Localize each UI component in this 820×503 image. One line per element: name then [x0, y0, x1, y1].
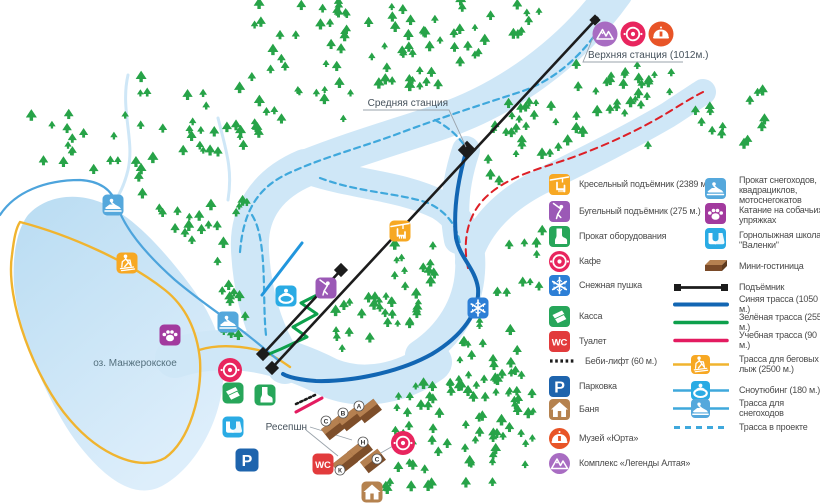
tree-icon: [643, 92, 651, 100]
tree-icon: [382, 62, 391, 72]
tree-icon: [429, 241, 437, 249]
tree-icon: [340, 115, 347, 122]
tree-icon: [535, 7, 542, 15]
tree-icon: [313, 89, 320, 97]
tree-icon: [455, 0, 466, 6]
tree-icon: [277, 54, 286, 63]
tbar-marker: [316, 278, 337, 299]
tree-icon: [527, 278, 534, 286]
tree-icon: [62, 123, 72, 133]
tree-icon: [209, 126, 219, 137]
tree-icon: [170, 223, 179, 233]
tree-icon: [248, 72, 257, 81]
tree-icon: [467, 350, 476, 360]
snowmobile-marker: [218, 312, 239, 333]
tree-icon: [605, 104, 614, 114]
tree-icon: [137, 89, 144, 96]
tree-icon: [411, 288, 422, 299]
tree-icon: [147, 151, 158, 163]
tree-icon: [213, 220, 222, 230]
tree-icon: [398, 4, 407, 14]
tree-icon: [387, 11, 397, 22]
tree-icon: [251, 20, 259, 28]
cabin-letter: С: [324, 419, 329, 426]
tree-icon: [505, 422, 515, 432]
tree-icon: [554, 142, 562, 151]
tree-icon: [489, 457, 496, 465]
tree-icon: [416, 66, 424, 74]
tree-icon: [533, 99, 540, 106]
tree-icon: [461, 477, 471, 488]
tree-icon: [518, 277, 527, 287]
tree-icon: [388, 309, 397, 318]
tree-icon: [496, 414, 507, 426]
tree-icon: [719, 122, 727, 131]
tree-icon: [434, 446, 443, 456]
tree-icon: [237, 133, 244, 140]
tree-icon: [592, 105, 603, 117]
tree-icon: [405, 14, 415, 25]
tree-icon: [205, 144, 216, 155]
ski-school-marker: [223, 417, 244, 438]
middle-station-label: Средняя станция: [368, 98, 448, 109]
tree-icon: [697, 117, 706, 126]
tree-icon: [517, 429, 525, 437]
tree-icon: [450, 42, 459, 52]
tree-icon: [254, 95, 265, 107]
tree-icon: [426, 259, 435, 268]
tree-icon: [401, 281, 409, 290]
tree-icon: [357, 308, 367, 318]
tree-icon: [515, 115, 523, 123]
tree-icon: [572, 111, 581, 120]
tree-icon: [523, 407, 534, 418]
tree-icon: [382, 292, 389, 300]
cafe-marker: [391, 431, 415, 455]
tree-icon: [537, 225, 547, 236]
tree-icon: [479, 339, 487, 348]
tree-icon: [114, 156, 122, 164]
reception-label: Ресепшн: [266, 422, 307, 433]
tree-icon: [234, 81, 245, 93]
tree-icon: [202, 101, 210, 109]
tree-icon: [254, 0, 265, 9]
tree-icon: [333, 332, 341, 341]
ticket-office-marker: [223, 383, 244, 404]
tree-icon: [621, 109, 629, 117]
tree-icon: [422, 77, 431, 86]
tree-icon: [173, 206, 182, 215]
tree-icon: [427, 435, 436, 445]
tree-icon: [194, 210, 204, 221]
tree-icon: [708, 126, 716, 135]
tree-icon: [347, 89, 354, 96]
tree-icon: [512, 0, 522, 10]
tree-icon: [239, 140, 249, 150]
tree-icon: [562, 134, 573, 145]
tree-icon: [58, 156, 68, 167]
tree-icon: [364, 17, 374, 27]
tree-icon: [520, 238, 528, 246]
tree-icon: [79, 128, 88, 138]
parking-marker: [236, 449, 259, 472]
tree-icon: [323, 60, 330, 67]
tree-icon: [390, 21, 401, 32]
tree-icon: [517, 135, 527, 146]
tree-icon: [522, 439, 529, 447]
cabin-letter: К: [338, 468, 342, 475]
cabin-letter: С: [375, 457, 380, 464]
tree-icon: [472, 24, 479, 31]
chairlift-line: [272, 17, 598, 368]
tree-icon: [186, 213, 193, 221]
tree-icon: [321, 86, 328, 93]
tree-icon: [158, 123, 167, 132]
tree-icon: [383, 317, 392, 327]
tree-icon: [391, 271, 399, 279]
tree-icon: [137, 188, 147, 199]
tree-icon: [436, 36, 443, 44]
dog-sled-marker: [160, 325, 181, 346]
banya-marker: [362, 482, 383, 503]
cabin-letter: А: [357, 404, 362, 411]
tree-icon: [505, 324, 516, 335]
tree-icon: [381, 42, 388, 49]
tree-icon: [455, 56, 465, 66]
tree-icon: [365, 332, 375, 343]
tree-icon: [529, 434, 536, 442]
cabin-letter: В: [341, 411, 346, 418]
tree-icon: [484, 154, 493, 164]
tree-icon: [462, 420, 470, 429]
tree-icon: [429, 423, 438, 433]
cafe-marker: [218, 358, 242, 382]
tree-icon: [552, 118, 559, 126]
upper-station-label: Верхняя станция (1012м.): [588, 50, 708, 61]
tree-icon: [521, 460, 529, 468]
tree-icon: [143, 88, 152, 97]
tree-icon: [64, 109, 74, 119]
tree-icon: [456, 356, 463, 363]
tree-icon: [488, 354, 498, 364]
tree-icon: [524, 16, 533, 25]
tree-icon: [137, 120, 145, 129]
tree-icon: [224, 279, 234, 290]
tree-icon: [394, 320, 401, 327]
tree-icon: [197, 126, 204, 134]
tree-icon: [64, 141, 71, 149]
cafe-marker: [621, 22, 646, 47]
tree-icon: [110, 132, 117, 140]
tree-icon: [39, 155, 49, 165]
tree-icon: [189, 117, 197, 125]
tree-icon: [505, 239, 514, 249]
tree-icon: [427, 67, 437, 77]
tree-icon: [204, 220, 212, 229]
tree-icon: [531, 237, 541, 248]
tree-icon: [512, 386, 521, 396]
chairlift-marker: [390, 221, 411, 242]
tree-icon: [266, 65, 274, 74]
tree-icon: [502, 287, 511, 296]
tree-icon: [416, 82, 424, 90]
tree-icon: [592, 87, 599, 95]
tree-icon: [182, 89, 192, 100]
tree-icon: [188, 235, 196, 244]
tree-icon: [527, 388, 536, 398]
tree-icon: [330, 304, 341, 316]
lake-label: оз. Манжерокское: [93, 358, 177, 369]
wc-marker: [313, 454, 334, 475]
tree-icon: [479, 34, 490, 45]
tree-icon: [745, 95, 754, 104]
snow-cannon-marker: [468, 298, 489, 319]
tree-icon: [492, 388, 499, 396]
tree-icon: [270, 106, 278, 114]
tree-icon: [443, 438, 452, 448]
tree-icon: [618, 78, 628, 89]
tree-icon: [296, 0, 306, 10]
tree-icon: [275, 30, 284, 40]
tree-icon: [403, 29, 414, 40]
stream-1: [105, 75, 130, 215]
tree-icon: [613, 98, 622, 107]
snowtubing-marker: [276, 286, 297, 307]
tree-icon: [461, 443, 469, 452]
tree-icon: [345, 327, 354, 337]
tree-icon: [481, 392, 490, 402]
snowmobile-marker: [103, 195, 124, 216]
tree-icon: [486, 10, 495, 20]
cabin-letter: Н: [361, 440, 366, 447]
tree-icon: [267, 44, 278, 56]
tree-icon: [637, 100, 645, 109]
tree-icon: [537, 147, 548, 159]
tree-icon: [332, 326, 340, 334]
tree-icon: [530, 110, 539, 120]
yurt-museum-marker: [649, 22, 674, 47]
tree-icon: [651, 71, 658, 78]
tree-icon: [666, 88, 673, 96]
tree-icon: [465, 371, 472, 379]
tree-icon: [178, 145, 188, 156]
tree-icon: [480, 374, 488, 383]
tree-icon: [218, 286, 226, 294]
tree-icon: [472, 436, 480, 444]
tree-icon: [277, 113, 287, 123]
tree-icon: [388, 3, 395, 10]
tree-icon: [546, 100, 556, 110]
tree-icon: [416, 399, 426, 410]
tree-icon: [463, 41, 473, 51]
tree-icon: [318, 4, 327, 13]
tree-icon: [106, 155, 115, 164]
tree-icon: [319, 93, 329, 104]
tree-icon: [667, 68, 675, 76]
tree-icon: [393, 256, 400, 263]
tree-icon: [512, 345, 521, 355]
tree-icon: [393, 461, 403, 472]
tree-icon: [431, 15, 439, 23]
training-trail: [296, 398, 322, 412]
tree-icon: [506, 357, 516, 368]
tree-icon: [475, 426, 485, 436]
tree-icon: [573, 81, 582, 91]
tree-icon: [425, 41, 435, 52]
tree-icon: [522, 122, 530, 131]
tree-icon: [433, 79, 443, 89]
tree-icon: [222, 121, 232, 132]
map-canvas: WC P: [0, 0, 820, 503]
tree-icon: [513, 150, 520, 157]
tree-icon: [368, 52, 375, 60]
tree-icon: [48, 121, 55, 129]
tree-icon: [218, 236, 229, 248]
tree-icon: [199, 89, 207, 97]
tree-icon: [332, 61, 342, 71]
tree-icon: [485, 169, 495, 180]
tree-icon: [338, 344, 345, 352]
tree-icon: [336, 43, 346, 53]
tree-icon: [205, 199, 216, 211]
tree-icon: [499, 432, 507, 440]
tree-icon: [339, 30, 349, 41]
tree-icon: [213, 257, 221, 266]
tree-icon: [187, 130, 197, 141]
tree-icon: [533, 250, 541, 258]
xc-skier-marker: [117, 253, 138, 274]
tree-icon: [197, 224, 207, 234]
equipment-rental-marker: [255, 385, 276, 406]
tree-icon: [68, 133, 77, 143]
tree-icon: [292, 30, 300, 39]
tree-icon: [535, 281, 544, 290]
cafe-leader: [379, 446, 393, 454]
tree-icon: [434, 407, 444, 418]
altai-legends-marker: [593, 22, 618, 47]
tree-icon: [523, 9, 530, 17]
tree-icon: [473, 381, 481, 389]
tree-icon: [262, 107, 270, 115]
tree-icon: [334, 77, 344, 88]
tree-icon: [26, 109, 37, 121]
tree-icon: [403, 407, 412, 417]
tree-icon: [405, 421, 414, 430]
tree-icon: [89, 164, 99, 174]
tree-icon: [393, 403, 400, 411]
tree-icon: [326, 39, 336, 49]
tree-icon: [326, 18, 334, 27]
tree-icon: [401, 266, 408, 273]
tree-icon: [406, 480, 417, 491]
tree-icon: [420, 464, 429, 473]
tree-icon: [488, 477, 497, 486]
ski-resort-trail-map: WC P: [0, 0, 820, 503]
tree-icon: [315, 18, 326, 29]
tree-icon: [136, 71, 147, 83]
